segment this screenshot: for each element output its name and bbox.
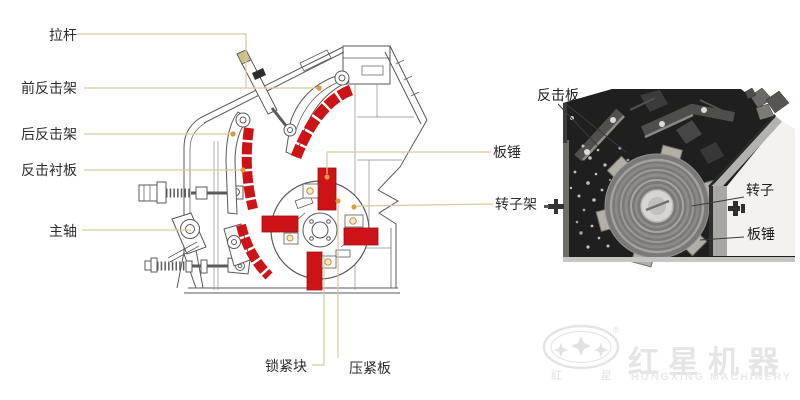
label-rotor-frame: 转子架: [495, 197, 537, 211]
brand-name-english: HONGXING MACHINERY: [631, 371, 792, 383]
hongxing-logo-emblem: [544, 326, 618, 368]
label-pressing-plate: 压紧板: [349, 361, 391, 375]
logo-seal-hong: 红: [551, 367, 562, 383]
photo-label-blow-bar: 板锤: [747, 227, 775, 241]
photo-label-impact-plate: 反击板: [537, 88, 579, 102]
label-tie-rod: 拉杆: [49, 28, 77, 42]
screenshot-root: 拉杆 前反击架 后反击架 反击衬板 主轴 锁紧块 压紧板 板锤 转子架 反击板 …: [0, 0, 800, 400]
star-icon: [554, 336, 608, 357]
label-main-shaft: 主轴: [49, 224, 77, 238]
logo-seal-xing: 星: [601, 367, 612, 383]
tension-bolt-left: [544, 199, 564, 214]
label-blow-bar: 板锤: [493, 145, 521, 159]
label-front-impact-rack: 前反击架: [21, 81, 77, 95]
label-lock-block: 锁紧块: [265, 359, 307, 373]
photo-label-rotor: 转子: [746, 183, 774, 197]
label-rear-impact-rack: 后反击架: [21, 127, 77, 141]
label-impact-liner: 反击衬板: [21, 163, 77, 177]
registered-mark: ®: [613, 325, 620, 335]
